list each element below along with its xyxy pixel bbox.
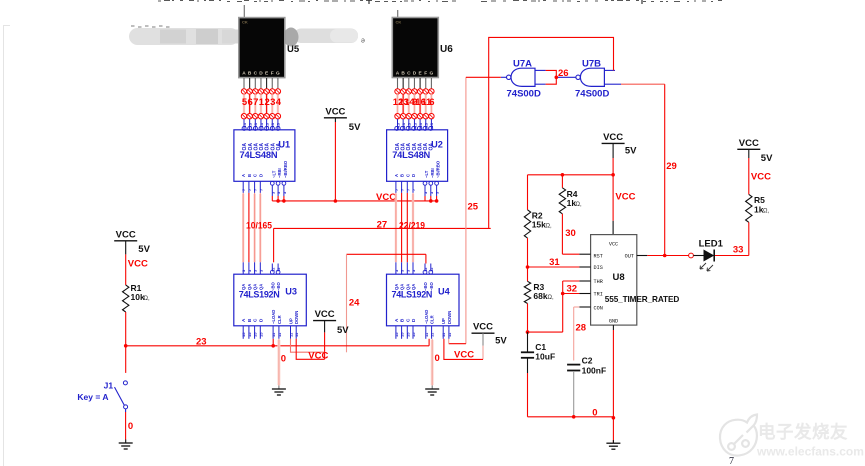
svg-text:~LT: ~LT [271,170,276,178]
svg-text:12: 12 [276,267,281,272]
svg-text:C2: C2 [582,355,593,365]
svg-text:A: A [396,71,400,77]
svg-text:15: 15 [258,332,263,337]
svg-text:15: 15 [411,332,416,337]
svg-text:2: 2 [264,97,269,108]
svg-text:0: 0 [592,407,597,418]
svg-text:5V: 5V [349,122,361,133]
svg-text:5V: 5V [138,244,150,255]
svg-text:A: A [394,174,399,177]
svg-text:15k: 15k [532,220,546,230]
svg-text:15: 15 [405,332,410,337]
svg-text:5V: 5V [337,325,349,336]
svg-text:12: 12 [429,267,434,272]
svg-text:UP: UP [441,318,446,324]
svg-text:4: 4 [276,97,282,108]
svg-text:74S00D: 74S00D [507,89,541,100]
svg-text:7: 7 [729,456,734,466]
svg-text:B: B [401,71,405,77]
svg-text:VCC: VCC [603,132,623,143]
svg-text:U2: U2 [431,139,443,149]
svg-text:VCC: VCC [615,192,635,203]
svg-text:C: C [405,174,410,177]
svg-text:D: D [259,71,263,77]
svg-text:B: B [248,71,252,77]
svg-text:0: 0 [281,354,286,365]
svg-text:D: D [258,174,263,177]
svg-text:F: F [271,71,274,77]
svg-text:J1: J1 [104,380,114,390]
svg-text:VCC: VCC [128,259,148,270]
svg-text:U4: U4 [438,287,451,297]
svg-text:~RBI: ~RBI [430,168,435,178]
svg-text:VCC: VCC [609,242,618,248]
svg-text:22/219: 22/219 [399,220,425,231]
svg-text:U8: U8 [613,272,625,283]
svg-text:15: 15 [400,332,405,337]
svg-text:C: C [253,174,258,177]
svg-text:33: 33 [733,244,744,255]
svg-text:VCC: VCC [315,309,335,320]
svg-text:D: D [411,174,416,177]
svg-text:30: 30 [565,228,576,239]
svg-text:DIS: DIS [594,265,603,271]
svg-text:U7B: U7B [582,59,601,70]
svg-text:VCC: VCC [116,229,136,240]
svg-text:~BI/RBO: ~BI/RBO [283,160,288,178]
svg-text:CK: CK [242,20,248,25]
svg-text:A: A [241,174,246,177]
svg-text:12: 12 [423,267,428,272]
svg-text:Ω,: Ω, [144,296,150,302]
svg-text:10uF: 10uF [535,351,555,361]
svg-text:CLR: CLR [430,315,435,324]
svg-text:7: 7 [253,97,258,108]
svg-text:DOWN: DOWN [294,311,299,324]
svg-text:GND: GND [609,319,618,325]
svg-text:D: D [413,71,417,77]
svg-text:6: 6 [429,97,434,108]
svg-text:100nF: 100nF [582,365,607,375]
svg-text:5V: 5V [625,146,637,157]
svg-text:15: 15 [253,332,258,337]
svg-text:~LOAD: ~LOAD [271,310,276,324]
svg-text:LED1: LED1 [699,238,724,249]
svg-text:VCC: VCC [473,322,493,333]
svg-text:U1: U1 [278,139,290,149]
svg-text:CK: CK [396,20,402,25]
svg-text:C: C [407,71,411,77]
svg-text:24: 24 [349,298,360,309]
svg-text:G: G [276,71,280,77]
svg-text:CLR: CLR [277,315,282,324]
svg-text:6: 6 [248,97,253,108]
svg-text:28: 28 [576,322,587,333]
svg-text:U5: U5 [287,44,300,55]
svg-text:5V: 5V [761,153,773,164]
svg-text:A: A [242,71,246,77]
svg-text:~LOAD: ~LOAD [424,310,429,324]
svg-text:Ω,: Ω, [548,295,554,301]
svg-text:15: 15 [394,332,399,337]
svg-text:UP: UP [289,318,294,324]
svg-text:Ω,: Ω, [546,224,552,230]
svg-text:~LT: ~LT [424,170,429,178]
svg-text:74S00D: 74S00D [575,89,609,100]
svg-text:U3: U3 [285,287,297,297]
svg-text:VCC: VCC [454,349,474,360]
svg-text:31: 31 [549,257,560,268]
svg-text:74LS48N: 74LS48N [392,150,430,160]
svg-text:U7A: U7A [513,59,532,70]
svg-text:RST: RST [594,254,603,260]
svg-text:ə: ə [361,38,365,45]
svg-text:B: B [400,174,405,177]
svg-text:10/165: 10/165 [246,220,273,231]
svg-text:26: 26 [558,68,569,79]
svg-text:VCC: VCC [376,192,396,203]
svg-text:OUT: OUT [625,254,634,260]
svg-text:DOWN: DOWN [447,311,452,324]
svg-text:~BI/RBO: ~BI/RBO [436,160,441,178]
svg-text:Key = A: Key = A [77,392,108,402]
svg-text:32: 32 [567,284,578,295]
svg-text:25: 25 [468,202,479,213]
svg-text:电子发烧友: 电子发烧友 [758,422,848,442]
svg-text:23: 23 [196,337,207,348]
svg-text:0: 0 [435,353,440,364]
svg-text:29: 29 [666,161,677,172]
svg-text:B: B [247,174,252,177]
svg-text:74LS48N: 74LS48N [240,150,278,160]
svg-text:15: 15 [247,332,252,337]
svg-text:0: 0 [128,421,133,432]
svg-text:U6: U6 [440,44,453,55]
svg-text:TRI: TRI [594,292,603,298]
svg-text:~RBI: ~RBI [277,168,282,178]
svg-text:VCC: VCC [308,351,328,362]
svg-text:Ω,: Ω, [576,202,582,208]
svg-text:3: 3 [270,97,275,108]
svg-text:G: G [430,71,434,77]
svg-text:5V: 5V [495,335,507,346]
svg-text:12: 12 [270,267,275,272]
svg-text:VCC: VCC [325,106,345,117]
svg-text:R5: R5 [754,195,765,205]
svg-text:27: 27 [377,219,388,230]
svg-text:www.elecfans.com: www.elecfans.com [756,445,864,459]
svg-text:F: F [424,71,427,77]
svg-text:15: 15 [241,332,246,337]
svg-text:555_TIMER_RATED: 555_TIMER_RATED [605,295,680,304]
svg-text:VCC: VCC [751,171,771,182]
svg-text:THR: THR [594,279,603,285]
svg-text:68k: 68k [533,291,547,301]
svg-text:74LS192N: 74LS192N [239,290,280,300]
svg-text:C: C [254,71,258,77]
svg-text:74LS192N: 74LS192N [392,290,433,300]
svg-text:VCC: VCC [739,138,759,149]
svg-text:Ω,: Ω, [763,209,769,215]
svg-text:CON: CON [594,306,603,312]
